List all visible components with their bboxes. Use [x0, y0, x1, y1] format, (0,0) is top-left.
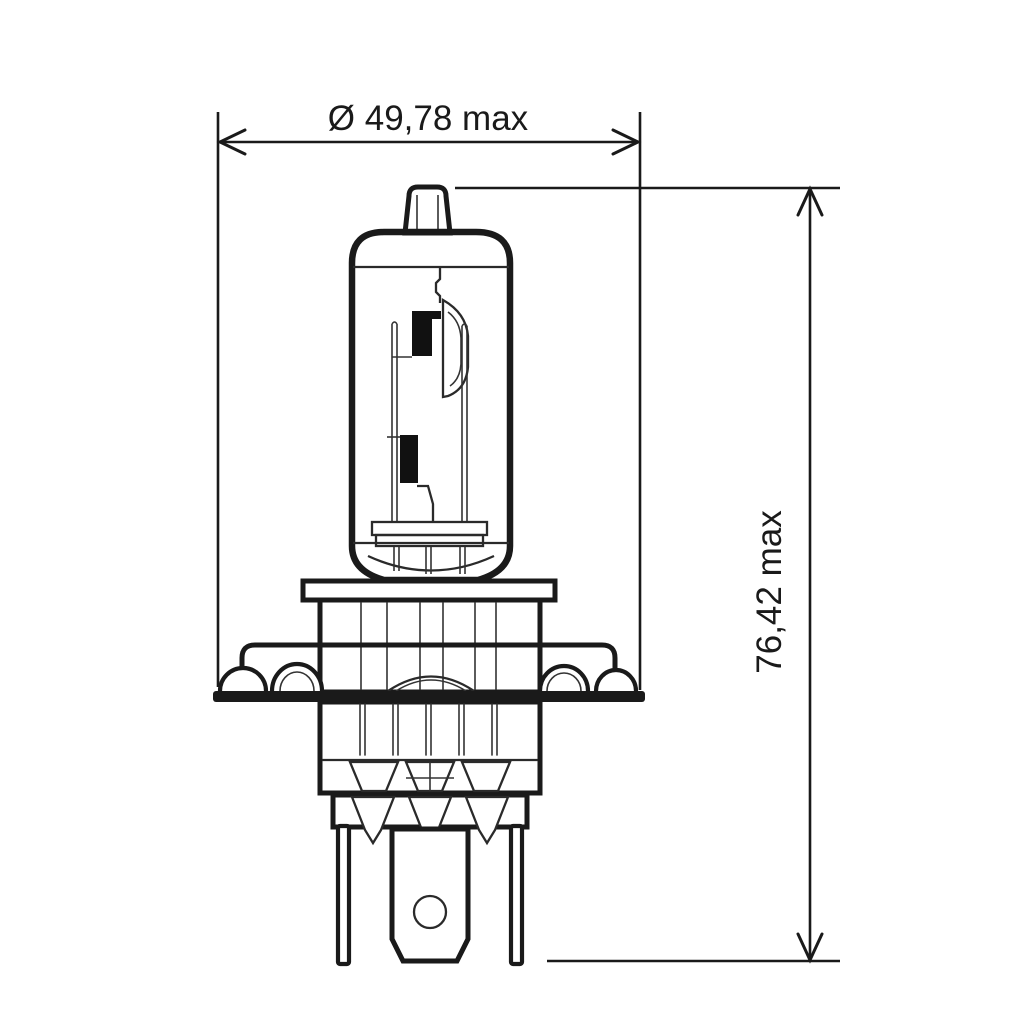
terminal-pin-right — [511, 826, 522, 964]
bulb-technical-drawing: Ø 49,78 max 76,42 max — [0, 0, 1024, 1024]
center-support-wire — [436, 266, 440, 303]
left-support-wire — [392, 322, 397, 522]
beam-shield-inner-line — [448, 312, 461, 386]
terminal-pin-left — [338, 826, 349, 964]
mount-bridge-upper — [372, 522, 487, 535]
beam-shield — [443, 300, 468, 397]
lower-filament-shield — [400, 435, 418, 483]
bulb-tip-facets — [417, 195, 438, 229]
diameter-label: Ø 49,78 max — [328, 99, 529, 138]
bulb-drawing — [213, 187, 645, 964]
bent-lead-wire — [417, 486, 433, 522]
height-label: 76,42 max — [750, 510, 789, 674]
mount-bridge-lower — [376, 535, 483, 546]
contact-wedges-upper — [350, 762, 510, 791]
bulb-tip — [405, 187, 450, 233]
base-flange-plate — [303, 581, 555, 600]
right-support-wire — [462, 324, 467, 522]
upper-filament-shield — [412, 311, 441, 356]
